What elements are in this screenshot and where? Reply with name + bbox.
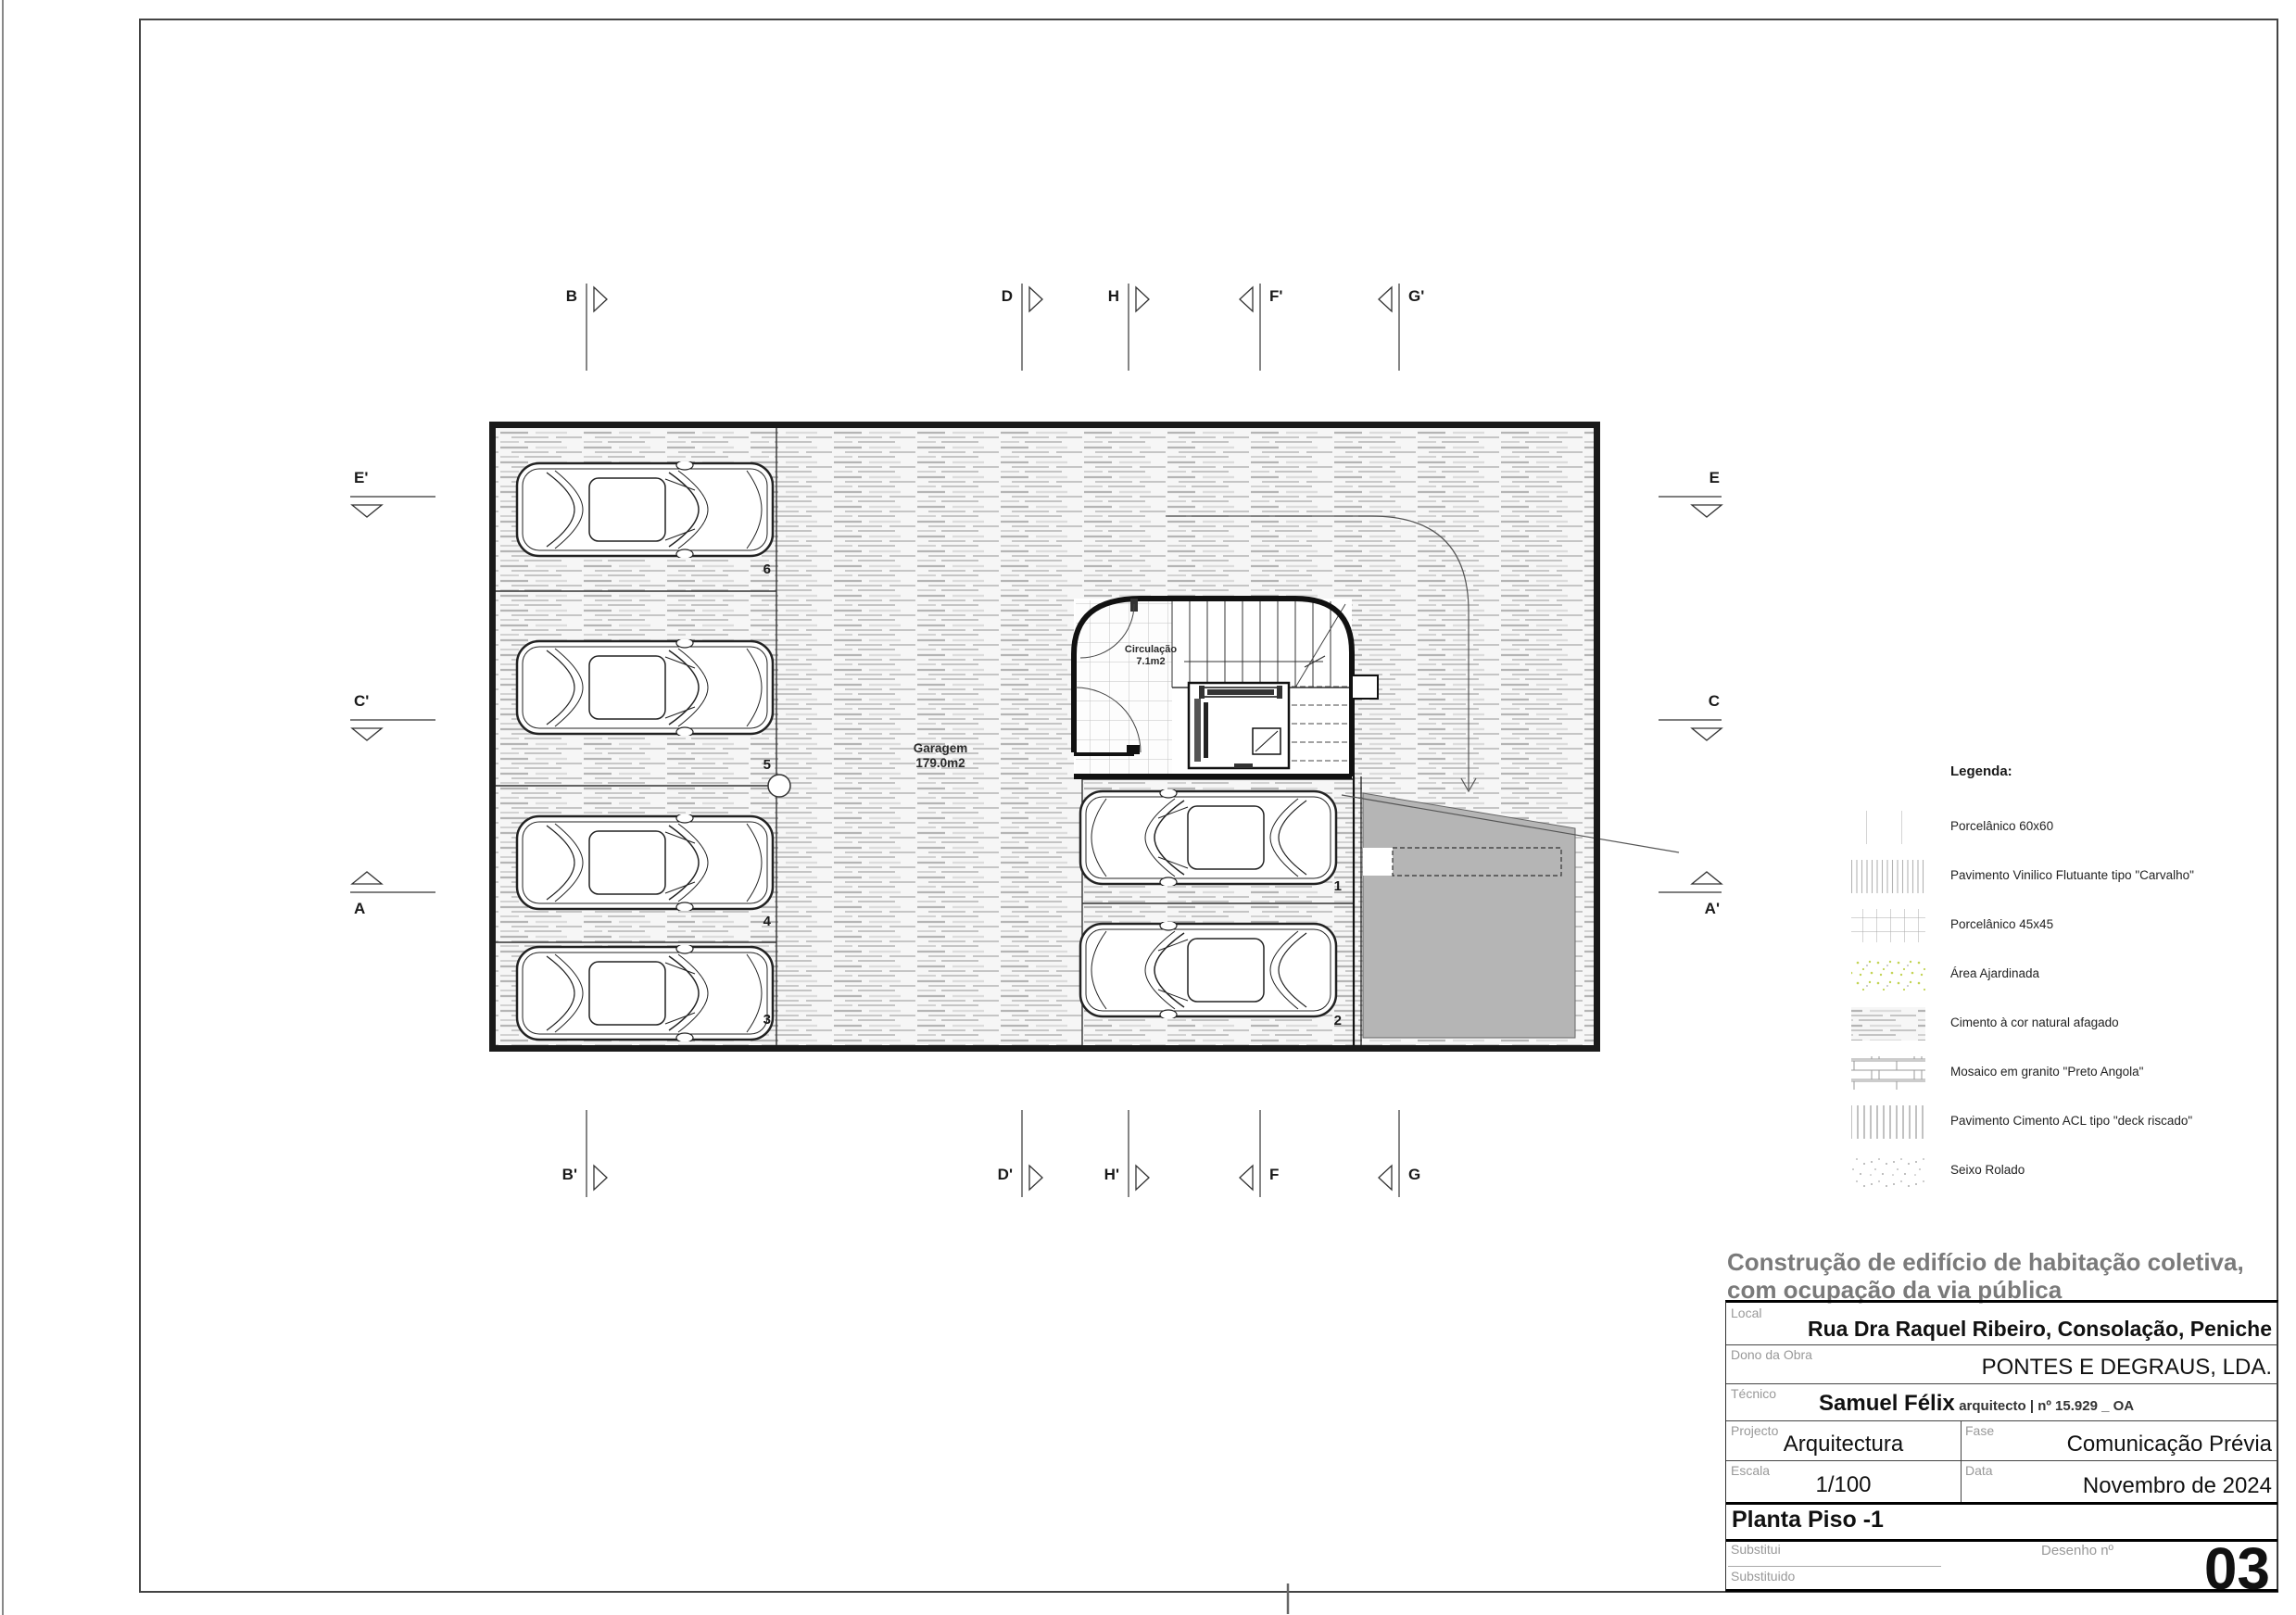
section-marker-bottom-0: B' bbox=[527, 1166, 577, 1184]
replaced-label: Substituido bbox=[1731, 1569, 1795, 1583]
owner-label: Dono da Obra bbox=[1731, 1347, 1812, 1362]
legend-item-label: Seixo Rolado bbox=[1950, 1163, 2025, 1177]
stall-number: 4 bbox=[725, 914, 771, 929]
circulation-room-label: Circulação 7.1m2 bbox=[1105, 644, 1196, 668]
drawing-no-value: 03 bbox=[2204, 1541, 2270, 1596]
drawing-name: Planta Piso -1 bbox=[1732, 1507, 1884, 1533]
section-marker-bottom-1: D' bbox=[963, 1166, 1013, 1184]
stall-number: 3 bbox=[725, 1012, 771, 1028]
section-marker-right-0: E bbox=[1664, 469, 1720, 487]
technician-value: Samuel Félix arquitecto | nº 15.929 _ OA bbox=[1819, 1391, 2134, 1417]
legend-item-label: Cimento à cor natural afagado bbox=[1950, 1016, 2119, 1029]
section-marker-top-2: H bbox=[1069, 287, 1119, 306]
section-marker-left-2: A bbox=[354, 900, 410, 918]
technician-label: Técnico bbox=[1731, 1386, 1776, 1401]
legend-item-label: Área Ajardinada bbox=[1950, 966, 2039, 980]
phase-value: Comunicação Prévia bbox=[2067, 1432, 2272, 1457]
title-block: Construção de edifício de habitação cole… bbox=[1725, 1248, 2278, 1592]
title-block-table: Local Rua Dra Raquel Ribeiro, Consolação… bbox=[1725, 1300, 2278, 1592]
stall-number: 6 bbox=[725, 561, 771, 577]
replaces-label: Substitui bbox=[1731, 1542, 1781, 1557]
drawing-no-label: Desenho nº bbox=[2041, 1543, 2113, 1558]
drawing-sheet: Garagem 179.0m2 Circulação 7.1m2 Legenda… bbox=[0, 0, 2296, 1615]
section-marker-bottom-3: F bbox=[1269, 1166, 1319, 1184]
scale-value: 1/100 bbox=[1726, 1472, 1961, 1498]
local-label: Local bbox=[1731, 1306, 1761, 1320]
stall-number: 2 bbox=[1295, 1013, 1342, 1028]
project-value: Arquitectura bbox=[1726, 1432, 1961, 1457]
garage-room-label: Garagem 179.0m2 bbox=[885, 741, 996, 771]
stall-number: 5 bbox=[725, 757, 771, 773]
local-value: Rua Dra Raquel Ribeiro, Consolação, Peni… bbox=[1808, 1317, 2272, 1342]
legend-item-label: Pavimento Vinilico Flutuante tipo "Carva… bbox=[1950, 868, 2194, 882]
legend-item-label: Porcelânico 60x60 bbox=[1950, 819, 2053, 833]
stall-number: 1 bbox=[1295, 878, 1342, 894]
section-marker-bottom-2: H' bbox=[1069, 1166, 1119, 1184]
legend-item-label: Pavimento Cimento ACL tipo "deck riscado… bbox=[1950, 1114, 2192, 1128]
section-marker-left-0: E' bbox=[354, 469, 410, 487]
section-marker-right-1: C bbox=[1664, 692, 1720, 711]
section-marker-left-1: C' bbox=[354, 692, 410, 711]
legend-title: Legenda: bbox=[1950, 763, 2012, 779]
legend-item-label: Porcelânico 45x45 bbox=[1950, 917, 2053, 931]
date-value: Novembro de 2024 bbox=[2083, 1473, 2272, 1499]
section-marker-top-1: D bbox=[963, 287, 1013, 306]
text-overlay: Garagem 179.0m2 Circulação 7.1m2 Legenda… bbox=[0, 0, 2296, 1615]
section-marker-bottom-4: G bbox=[1408, 1166, 1458, 1184]
phase-label: Fase bbox=[1965, 1423, 1994, 1438]
legend-item-label: Mosaico em granito "Preto Angola" bbox=[1950, 1065, 2143, 1079]
owner-value: PONTES E DEGRAUS, LDA. bbox=[1982, 1355, 2272, 1381]
section-marker-top-4: G' bbox=[1408, 287, 1458, 306]
project-title: Construção de edifício de habitação cole… bbox=[1727, 1248, 2244, 1304]
date-label: Data bbox=[1965, 1463, 1993, 1478]
section-marker-top-0: B bbox=[527, 287, 577, 306]
section-marker-top-3: F' bbox=[1269, 287, 1319, 306]
section-marker-right-2: A' bbox=[1664, 900, 1720, 918]
